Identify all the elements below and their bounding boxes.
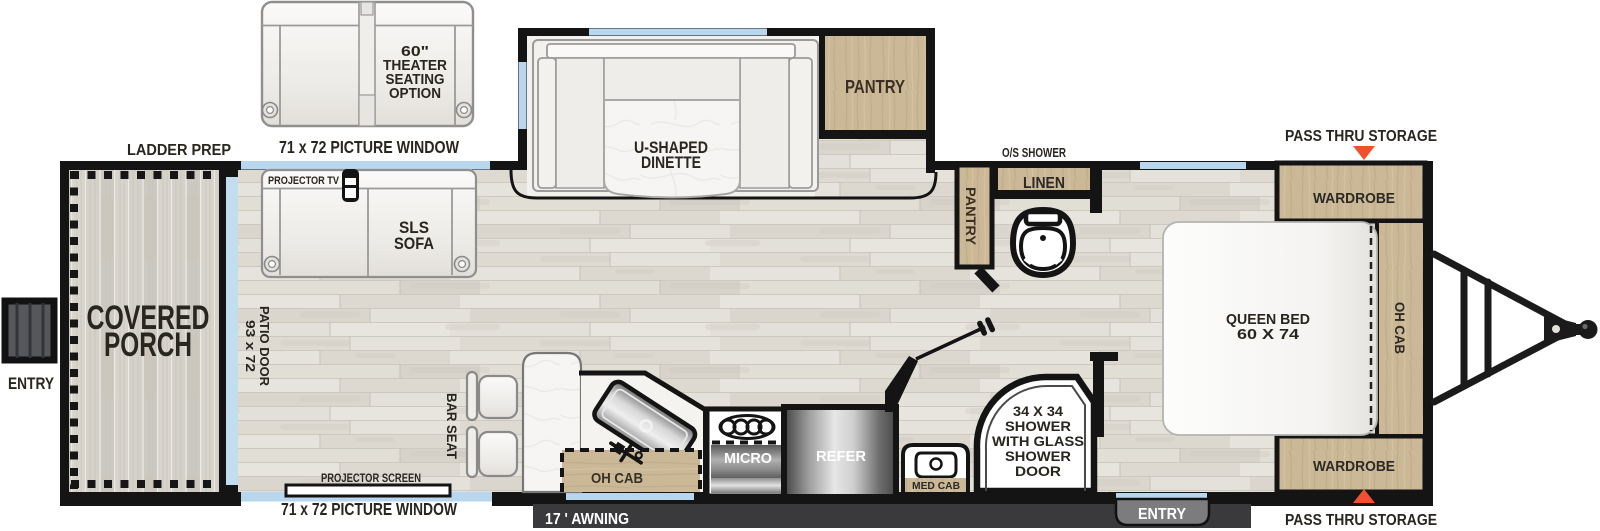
svg-text:OPTION: OPTION xyxy=(389,85,441,102)
svg-text:OH CAB: OH CAB xyxy=(591,470,643,487)
svg-text:BAR SEAT: BAR SEAT xyxy=(444,393,460,459)
svg-text:OH CAB: OH CAB xyxy=(1392,302,1407,354)
svg-text:REFER: REFER xyxy=(816,448,866,465)
svg-text:60 X 74: 60 X 74 xyxy=(1237,326,1300,343)
svg-text:WARDROBE: WARDROBE xyxy=(1313,190,1395,207)
svg-text:WARDROBE: WARDROBE xyxy=(1313,458,1395,475)
svg-text:PORCH: PORCH xyxy=(104,326,192,364)
svg-text:SHOWER: SHOWER xyxy=(1005,418,1071,434)
svg-text:17 ' AWNING: 17 ' AWNING xyxy=(545,511,629,528)
svg-text:ENTRY: ENTRY xyxy=(1138,506,1186,523)
svg-text:PATIO DOOR: PATIO DOOR xyxy=(257,306,271,386)
svg-text:PANTRY: PANTRY xyxy=(963,187,978,245)
svg-text:WITH GLASS: WITH GLASS xyxy=(992,433,1084,449)
svg-text:93 x 72: 93 x 72 xyxy=(243,320,257,372)
svg-text:O/S SHOWER: O/S SHOWER xyxy=(1002,146,1066,160)
svg-text:DINETTE: DINETTE xyxy=(641,153,701,172)
svg-text:PROJECTOR SCREEN: PROJECTOR SCREEN xyxy=(321,471,421,485)
svg-text:ENTRY: ENTRY xyxy=(8,375,54,393)
svg-text:71 x 72 PICTURE WINDOW: 71 x 72 PICTURE WINDOW xyxy=(281,499,457,519)
svg-text:LADDER PREP: LADDER PREP xyxy=(127,142,231,159)
svg-text:SOFA: SOFA xyxy=(394,234,434,253)
svg-text:SHOWER: SHOWER xyxy=(1005,448,1071,464)
svg-text:34 X 34: 34 X 34 xyxy=(1013,403,1063,419)
svg-text:71 x 72 PICTURE WINDOW: 71 x 72 PICTURE WINDOW xyxy=(279,137,459,157)
svg-text:PASS THRU STORAGE: PASS THRU STORAGE xyxy=(1285,128,1437,145)
svg-text:DOOR: DOOR xyxy=(1015,463,1061,479)
svg-text:MICRO: MICRO xyxy=(724,450,772,467)
svg-text:PANTRY: PANTRY xyxy=(845,77,905,97)
svg-text:LINEN: LINEN xyxy=(1023,175,1065,192)
svg-text:MED CAB: MED CAB xyxy=(912,480,960,492)
svg-text:PASS THRU STORAGE: PASS THRU STORAGE xyxy=(1285,512,1437,529)
svg-text:PROJECTOR TV: PROJECTOR TV xyxy=(268,175,340,187)
